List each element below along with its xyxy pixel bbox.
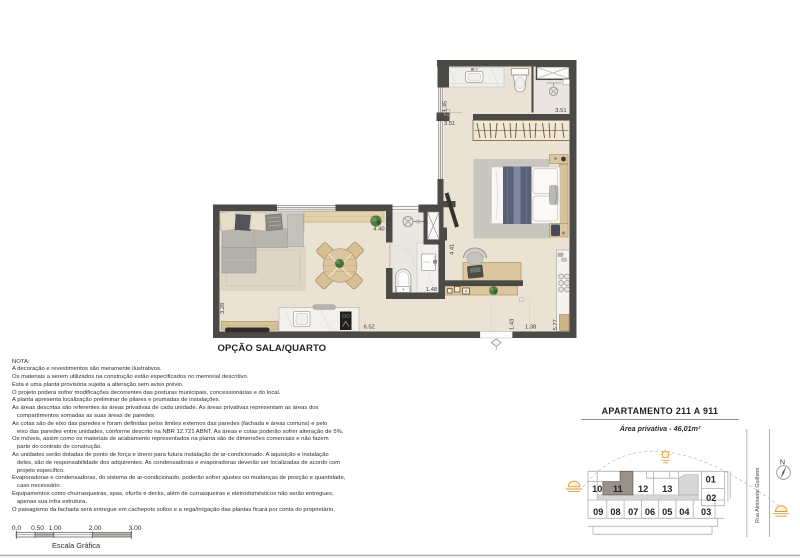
svg-text:4.41: 4.41 [450,244,456,255]
svg-text:5.77: 5.77 [553,319,559,330]
svg-text:13: 13 [662,484,672,494]
svg-text:3.51: 3.51 [555,108,566,114]
svg-text:4.40: 4.40 [373,227,384,233]
svg-text:02: 02 [706,493,716,503]
svg-text:2.00: 2.00 [89,525,102,532]
svg-text:01: 01 [706,475,716,485]
svg-text:3.28: 3.28 [220,303,226,314]
svg-text:1.43: 1.43 [510,319,516,330]
svg-text:2.33: 2.33 [387,216,393,227]
svg-text:0.0: 0.0 [12,525,21,532]
svg-text:0.50: 0.50 [31,525,44,532]
svg-text:N: N [780,458,785,467]
svg-text:1.45: 1.45 [443,101,449,112]
svg-text:6.52: 6.52 [364,325,375,331]
svg-text:1.00: 1.00 [49,525,62,532]
svg-text:04: 04 [679,507,690,517]
svg-text:1.48: 1.48 [426,287,437,293]
svg-text:3.00: 3.00 [129,525,142,532]
svg-text:05: 05 [662,507,672,517]
svg-text:03: 03 [701,507,711,517]
svg-text:1.38: 1.38 [525,324,536,330]
svg-text:3.51: 3.51 [444,121,455,127]
svg-text:Rua Almirante Guilhem: Rua Almirante Guilhem [755,467,761,523]
